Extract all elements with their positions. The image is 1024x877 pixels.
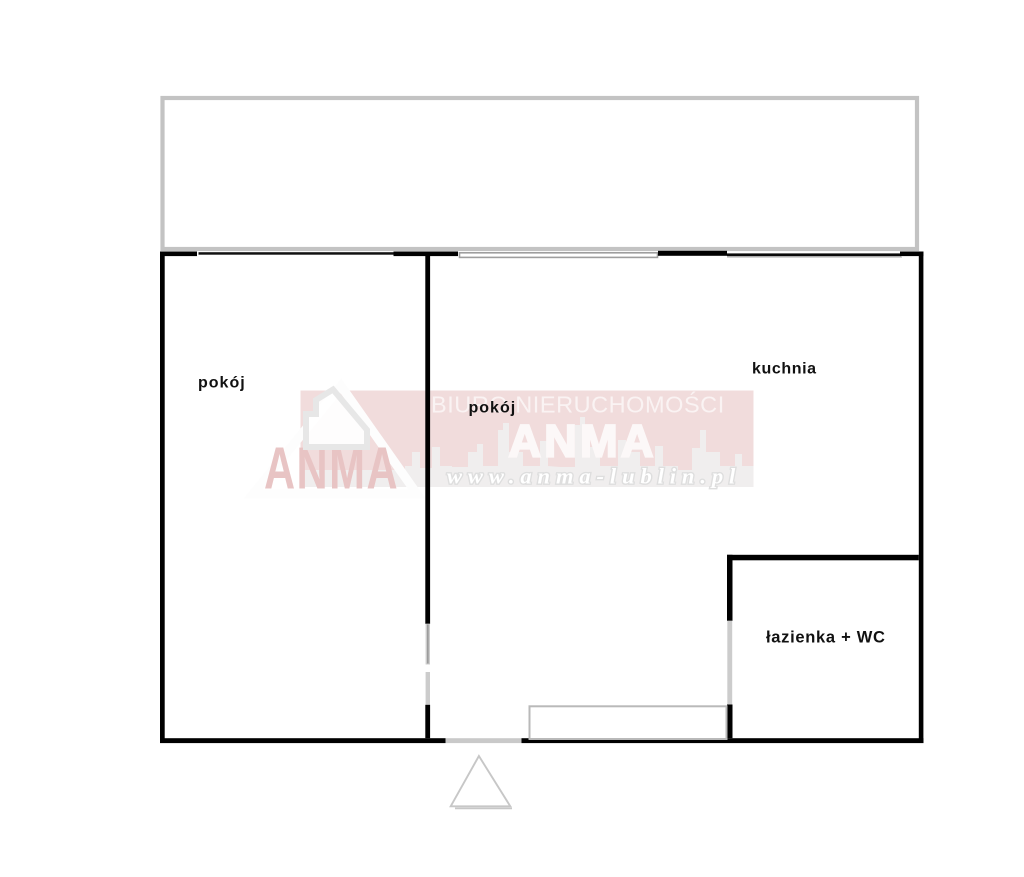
- svg-text:łazienka + WC: łazienka + WC: [766, 629, 886, 647]
- svg-text:www.anma-lublin.pl: www.anma-lublin.pl: [447, 464, 741, 489]
- svg-text:ANMA: ANMA: [509, 416, 657, 467]
- svg-text:pokój: pokój: [469, 400, 517, 417]
- svg-text:kuchnia: kuchnia: [752, 361, 817, 378]
- svg-text:pokój: pokój: [198, 375, 246, 392]
